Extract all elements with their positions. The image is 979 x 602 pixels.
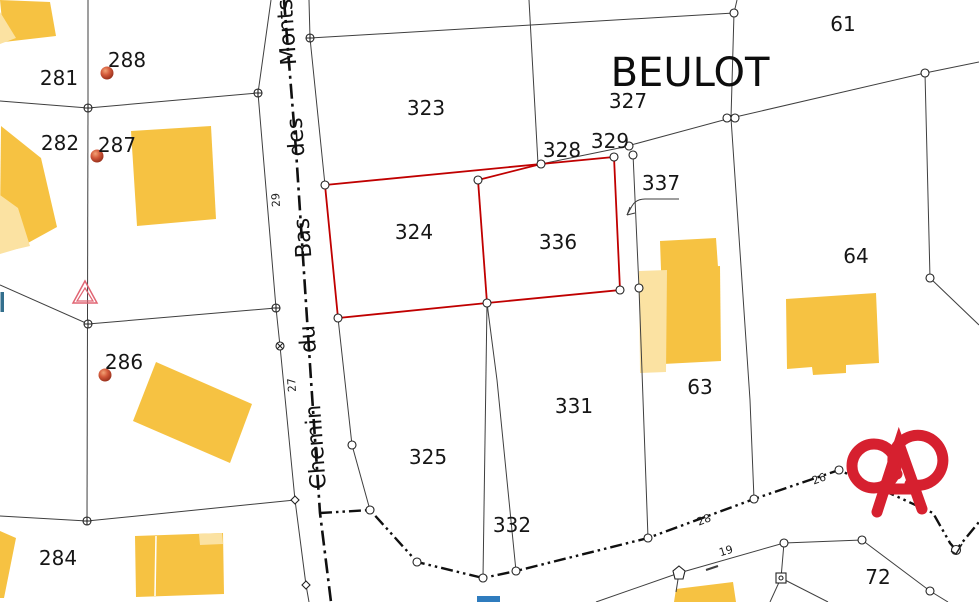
cadastral-map-canvas	[0, 0, 979, 602]
diamond-marker	[291, 496, 299, 504]
place-name-label: BEULOT	[611, 53, 770, 93]
road-name-word-monts: Monts	[275, 0, 302, 66]
parcel-label-332: 332	[493, 515, 531, 535]
parcel-label-337: 337	[642, 173, 680, 193]
parcel-label-284: 284	[39, 548, 77, 568]
parcel-label-282: 282	[41, 133, 79, 153]
road-name-word-bas: Bas	[292, 217, 317, 258]
tick-mark	[706, 566, 718, 570]
parcel-label-64: 64	[843, 246, 868, 266]
parcel-label-323: 323	[407, 98, 445, 118]
diamond-marker	[302, 581, 310, 589]
parcel-label-328: 328	[543, 140, 581, 160]
parcel-label-329: 329	[591, 131, 629, 151]
building	[660, 238, 718, 270]
parcel-label-281: 281	[40, 68, 78, 88]
parcel-label-324: 324	[395, 222, 433, 242]
parcel-label-331: 331	[555, 396, 593, 416]
building	[674, 582, 736, 602]
building	[131, 126, 216, 226]
parcel-label-327: 327	[609, 91, 647, 111]
parcel-label-61: 61	[830, 14, 855, 34]
road-name-word-du: du	[297, 324, 321, 353]
road-name-word-des: des	[285, 117, 310, 157]
parcel-label-72: 72	[865, 567, 890, 587]
pentagon-marker	[673, 566, 685, 579]
building	[133, 362, 252, 463]
parcel-label-336: 336	[539, 232, 577, 252]
building-light-wing	[199, 533, 223, 545]
circled-plus-marker	[83, 34, 314, 525]
square-marker	[776, 573, 786, 583]
building	[661, 266, 721, 364]
water-feature	[1, 292, 5, 312]
parcel-label-288: 288	[108, 50, 146, 70]
building	[786, 293, 879, 375]
road-edge-west	[258, 0, 309, 602]
parcel-label-63: 63	[687, 377, 712, 397]
address-point-dots	[91, 67, 114, 382]
building-divider	[155, 536, 156, 596]
map-viewport[interactable]: BEULOT 281 288 282 287 286 284 323 324 3…	[0, 0, 979, 602]
survey-number-27: 27	[286, 378, 298, 393]
parcel-label-325: 325	[409, 447, 447, 467]
geodetic-triangle-icon	[73, 281, 97, 303]
water-feature	[477, 596, 500, 602]
road-name-word-chemin: Chemin	[303, 404, 331, 490]
building	[0, 531, 16, 598]
alsace-logo-icon	[852, 435, 943, 512]
survey-number-29: 29	[270, 193, 282, 208]
building-light-wing	[639, 270, 667, 373]
parcel-label-286: 286	[105, 352, 143, 372]
circled-x-marker	[276, 342, 284, 350]
parcel-label-287: 287	[98, 135, 136, 155]
